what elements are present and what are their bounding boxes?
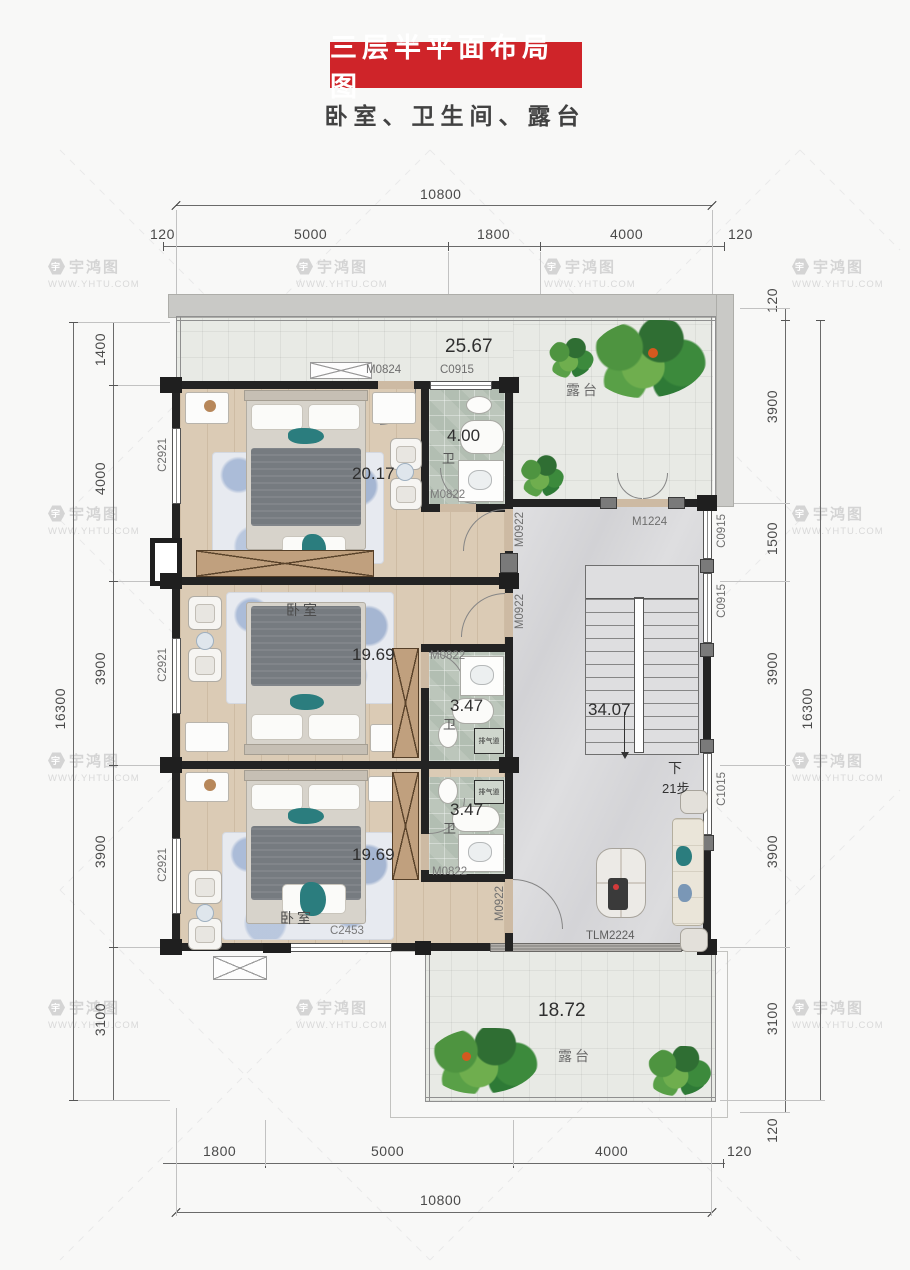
stairs-area: 34.07: [588, 700, 631, 720]
bedroom-mid-label: 卧室: [286, 600, 320, 620]
watermark-url: WWW.YHTU.COM: [296, 1020, 388, 1031]
watermark: 宇宇鸿图WWW.YHTU.COM: [48, 750, 140, 784]
dim-right-total: 16300: [799, 688, 815, 729]
headboard: [244, 390, 368, 401]
bedroom-top-area: 20.17: [352, 464, 395, 484]
headboard: [244, 744, 368, 755]
watermark-brand: 宇鸿图: [317, 256, 368, 277]
watermark-logo-icon: 宇: [296, 999, 313, 1016]
window-c0915-right: [703, 509, 712, 559]
chair: [188, 648, 222, 682]
watermark-brand: 宇鸿图: [317, 997, 368, 1018]
wall: [421, 769, 429, 834]
label-m0922: M0922: [494, 886, 506, 921]
bedroom-bottom-area: 19.69: [352, 845, 395, 865]
chair: [188, 870, 222, 904]
side-table: [396, 463, 414, 481]
label-tlm2224: TLM2224: [586, 930, 635, 942]
bath-mid-tag: 卫: [443, 714, 456, 733]
watermark: 宇宇鸿图WWW.YHTU.COM: [544, 256, 636, 290]
watermark-logo-icon: 宇: [48, 505, 65, 522]
wall: [421, 504, 440, 512]
label-c2921: C2921: [157, 848, 169, 882]
headboard: [244, 770, 368, 781]
vent-shaft: 排气道: [474, 728, 504, 754]
watermark-url: WWW.YHTU.COM: [48, 773, 140, 784]
door-opening-m1224: [617, 499, 668, 507]
label-m0922: M0922: [514, 512, 526, 547]
flower-accent: [462, 1052, 471, 1061]
watermark-url: WWW.YHTU.COM: [48, 526, 140, 537]
window-c0915-top: [430, 381, 492, 390]
wall: [421, 381, 429, 512]
watermark-logo-icon: 宇: [544, 258, 561, 275]
dim-left-total: 16300: [52, 688, 68, 729]
tray: [608, 878, 628, 910]
roof-edge-band: [716, 294, 734, 507]
basin: [470, 665, 494, 685]
stair-divider: [634, 597, 644, 753]
terrace-railing: [711, 951, 716, 1102]
label-m0922: M0922: [514, 594, 526, 629]
door-opening-m0822: [421, 834, 429, 870]
terrace-bottom-label: 露台: [558, 1046, 592, 1066]
window-c2921: [172, 638, 181, 714]
side-table: [196, 904, 214, 922]
sofa-pillow: [678, 884, 692, 902]
toilet: [466, 396, 492, 414]
watermark-logo-icon: 宇: [792, 505, 809, 522]
sliding-door-tlm2224: [490, 943, 682, 952]
wardrobe: [392, 648, 419, 758]
terrace-top-label: 露台: [566, 380, 600, 400]
watermark: 宇宇鸿图WWW.YHTU.COM: [296, 997, 388, 1031]
stairs-steps: 21步: [662, 778, 689, 797]
nightstand: [372, 392, 416, 424]
watermark-url: WWW.YHTU.COM: [544, 279, 636, 290]
window-c2921: [172, 838, 181, 914]
watermark-logo-icon: 宇: [48, 999, 65, 1016]
watermark-logo-icon: 宇: [48, 258, 65, 275]
door-opening-m0822: [421, 652, 429, 688]
bath-top-area: 4.00: [447, 426, 480, 446]
watermark: 宇宇鸿图WWW.YHTU.COM: [792, 503, 884, 537]
wall: [505, 381, 513, 509]
terrace-railing: [711, 316, 716, 507]
bath-mid-area: 3.47: [450, 696, 483, 716]
watermark: 宇宇鸿图WWW.YHTU.COM: [792, 256, 884, 290]
door-opening-m0922: [505, 593, 513, 637]
dim-top-total: 10800: [420, 186, 461, 202]
watermark: 宇宇鸿图WWW.YHTU.COM: [296, 256, 388, 290]
sofa: [672, 818, 704, 926]
wall: [505, 933, 513, 951]
wall: [392, 943, 490, 951]
watermark-url: WWW.YHTU.COM: [792, 279, 884, 290]
bath-bottom-tag: 卫: [443, 818, 456, 837]
watermark: 宇宇鸿图WWW.YHTU.COM: [792, 750, 884, 784]
door-opening-m0922: [505, 879, 513, 933]
roof-edge-band: [168, 294, 734, 318]
label-m0822: M0822: [430, 650, 465, 662]
label-c0915: C0915: [716, 514, 728, 548]
label-c2921: C2921: [157, 438, 169, 472]
pouf: [680, 928, 708, 952]
wardrobe: [196, 550, 374, 577]
window-c2453: [290, 943, 392, 952]
dim-bottom-total: 10800: [420, 1192, 461, 1208]
bath-bottom-area: 3.47: [450, 800, 483, 820]
watermark-logo-icon: 宇: [792, 258, 809, 275]
watermark-url: WWW.YHTU.COM: [48, 279, 140, 290]
page-title: 三层半平面布局图: [330, 42, 582, 88]
chair: [188, 596, 222, 630]
planter-box: [310, 362, 372, 379]
terrace-railing: [425, 951, 430, 1102]
label-c0915: C0915: [716, 584, 728, 618]
door-opening-m0824: [378, 381, 414, 389]
watermark-url: WWW.YHTU.COM: [792, 1020, 884, 1031]
wall: [421, 688, 429, 769]
watermark-url: WWW.YHTU.COM: [296, 279, 388, 290]
floor-plan-page: 宇宇鸿图WWW.YHTU.COM宇宇鸿图WWW.YHTU.COM宇宇鸿图WWW.…: [0, 0, 910, 1270]
wall: [172, 761, 513, 769]
label-c2453: C2453: [330, 925, 364, 937]
watermark: 宇宇鸿图WWW.YHTU.COM: [48, 256, 140, 290]
watermark: 宇宇鸿图WWW.YHTU.COM: [48, 503, 140, 537]
watermark-brand: 宇鸿图: [813, 256, 864, 277]
watermark-brand: 宇鸿图: [69, 256, 120, 277]
bedroom-bottom-label: 卧室: [280, 908, 314, 928]
chair: [390, 478, 422, 510]
watermark-url: WWW.YHTU.COM: [792, 773, 884, 784]
window-c0915-right: [703, 573, 712, 643]
side-table: [196, 632, 214, 650]
page-subtitle: 卧室、卫生间、露台: [0, 97, 910, 131]
wall: [172, 381, 378, 389]
basin: [468, 470, 492, 490]
wall: [172, 577, 513, 585]
watermark-logo-icon: 宇: [792, 752, 809, 769]
label-c2921: C2921: [157, 648, 169, 682]
label-c0915: C0915: [440, 364, 474, 376]
window-c2921: [172, 428, 181, 504]
bedroom-mid-area: 19.69: [352, 645, 395, 665]
terrace-railing: [425, 1097, 716, 1102]
planter-box: [213, 956, 267, 980]
watermark-logo-icon: 宇: [48, 752, 65, 769]
bath-top-tag: 卫: [442, 448, 455, 467]
dim-line: [163, 246, 725, 247]
door-opening-m0822: [440, 504, 476, 512]
label-m1224: M1224: [632, 516, 667, 528]
watermark-logo-icon: 宇: [296, 258, 313, 275]
chair: [188, 918, 222, 950]
watermark-brand: 宇鸿图: [565, 256, 616, 277]
flower-accent: [648, 348, 658, 358]
dim-line: [176, 205, 712, 206]
stairs-down: 下: [668, 758, 682, 778]
label-m0822: M0822: [432, 866, 467, 878]
watermark-url: WWW.YHTU.COM: [792, 526, 884, 537]
terrace-railing: [176, 316, 181, 384]
label-m0822: M0822: [430, 489, 465, 501]
wardrobe: [392, 772, 419, 880]
watermark: 宇宇鸿图WWW.YHTU.COM: [792, 997, 884, 1031]
label-c1015: C1015: [716, 772, 728, 806]
nightstand: [185, 722, 229, 752]
sofa-pillow: [676, 846, 692, 866]
terrace-bottom-area: 18.72: [538, 1000, 586, 1022]
basin: [468, 842, 492, 862]
label-m0824: M0824: [366, 364, 401, 376]
roof-terrace-area: 25.67: [445, 336, 493, 358]
watermark-logo-icon: 宇: [792, 999, 809, 1016]
door-opening-m0922: [505, 509, 513, 551]
